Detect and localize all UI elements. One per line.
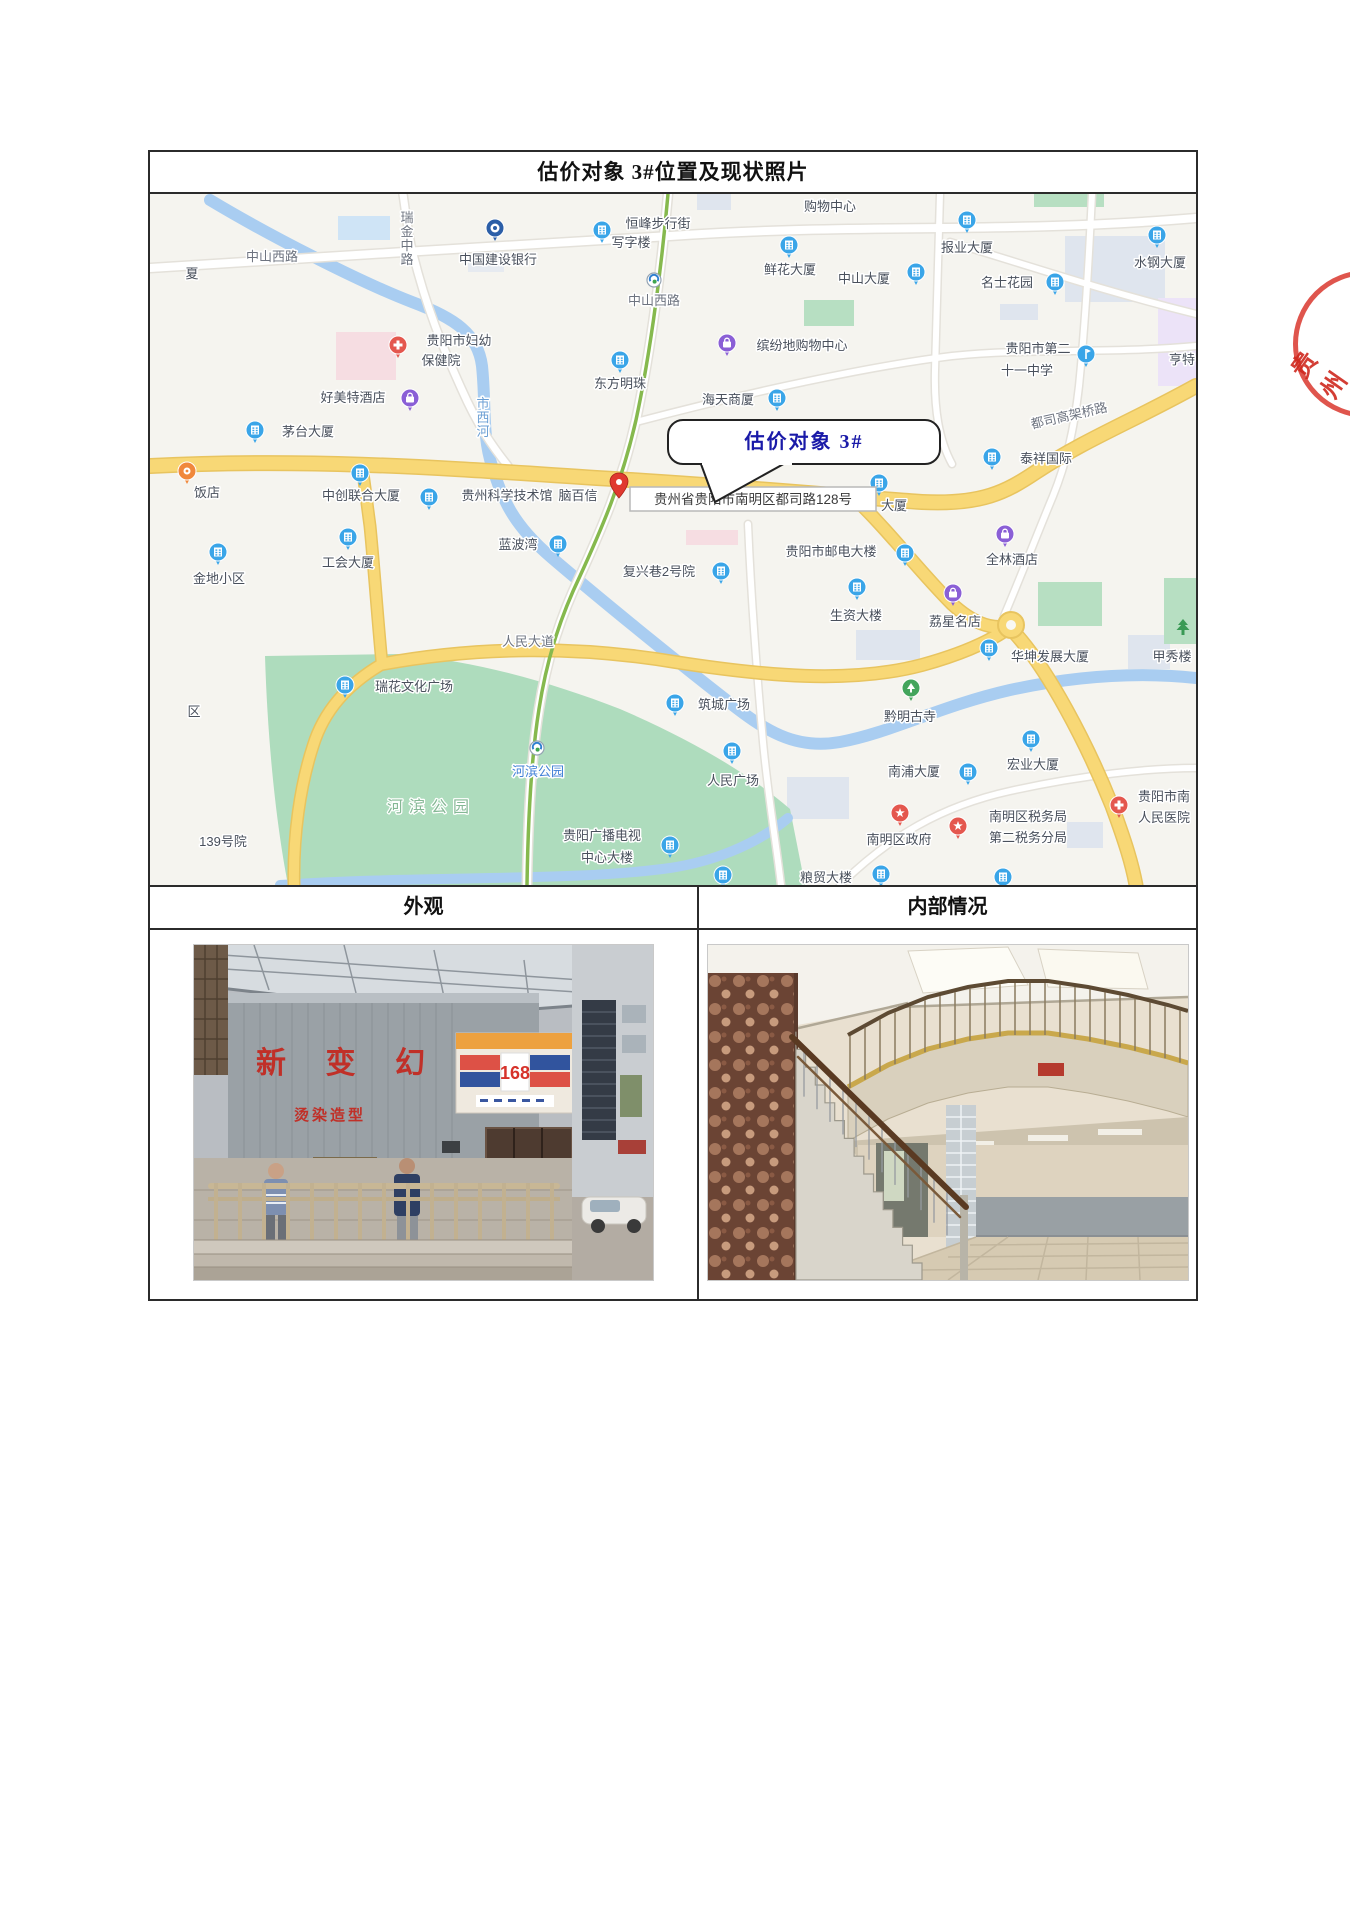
svg-text:筑城广场: 筑城广场 [698,697,750,712]
svg-text:粮贸大楼: 粮贸大楼 [800,870,852,885]
table-title: 估价对象 3#位置及现状照片 [150,152,1196,194]
svg-text:海天商厦: 海天商厦 [702,392,754,407]
wainscot [976,1197,1188,1235]
svg-text:宏业大厦: 宏业大厦 [1007,757,1059,772]
interior-photo-cell [699,930,1196,1299]
svg-text:中山大厦: 中山大厦 [838,271,890,286]
svg-text:中国建设银行: 中国建设银行 [459,252,537,267]
svg-text:中山西路: 中山西路 [628,293,680,308]
svg-text:贵阳市第二: 贵阳市第二 [1005,341,1070,356]
svg-text:十一中学: 十一中学 [1001,363,1053,378]
svg-text:亨特: 亨特 [1169,352,1195,367]
svg-text:黔明古寺: 黔明古寺 [884,709,936,724]
svg-text:南明区税务局: 南明区税务局 [989,809,1067,824]
svg-text:报业大厦: 报业大厦 [941,240,993,255]
official-seal: 贵州 [1288,268,1350,426]
photo-row: 新 变 幻 烫染造型 168 [150,930,1196,1299]
svg-text:139号院: 139号院 [199,834,247,849]
svg-text:缤纷地购物中心: 缤纷地购物中心 [756,338,847,353]
svg-text:生资大楼: 生资大楼 [830,608,882,623]
svg-text:人民大道: 人民大道 [502,634,554,649]
svg-text:名士花园: 名士花园 [981,275,1033,290]
storefront-subsign-text: 烫染造型 [294,1106,366,1124]
svg-text:东方明珠: 东方明珠 [594,376,646,391]
svg-text:复兴巷2号院: 复兴巷2号院 [623,564,695,579]
appraisal-photo-table: 估价对象 3#位置及现状照片 [148,150,1198,1301]
svg-text:恒峰步行街: 恒峰步行街 [625,216,690,231]
svg-text:水钢大厦: 水钢大厦 [1134,255,1186,270]
svg-text:市西河: 市西河 [476,396,489,439]
photo-headers: 外观 内部情况 [150,887,1196,930]
address-tooltip-text: 贵州省贵阳市南明区都司路128号 [654,491,852,507]
sign-168-number: 168 [500,1063,530,1083]
patterned-wallpaper [708,973,796,1280]
svg-text:人民医院: 人民医院 [1138,810,1190,825]
map-canvas: 中国建设银行恒峰步行街写字楼购物中心鲜花大厦报业大厦水钢大厦中山大厦名士花园缤纷… [150,194,1196,885]
svg-text:贵阳市邮电大楼: 贵阳市邮电大楼 [785,544,876,559]
svg-text:金地小区: 金地小区 [193,571,245,586]
svg-text:甲秀楼: 甲秀楼 [1152,649,1191,664]
svg-text:河滨公园: 河滨公园 [512,764,564,779]
report-page: { "table": { "title": "估价对象 3#位置及现状照片", … [0,0,1350,1909]
location-map: 中国建设银行恒峰步行街写字楼购物中心鲜花大厦报业大厦水钢大厦中山大厦名士花园缤纷… [150,194,1196,887]
svg-text:人民广场: 人民广场 [707,773,759,788]
svg-text:全林酒店: 全林酒店 [986,552,1038,567]
svg-text:脑百信: 脑百信 [558,488,597,503]
svg-text:南浦大厦: 南浦大厦 [888,764,940,779]
svg-text:保健院: 保健院 [421,353,460,368]
svg-text:泰祥国际: 泰祥国际 [1020,451,1072,466]
svg-text:大厦: 大厦 [881,498,907,513]
metro-station-icon [530,741,544,755]
svg-text:贵阳市妇幼: 贵阳市妇幼 [426,333,491,348]
red-awning [618,1140,646,1154]
svg-text:鲜花大厦: 鲜花大厦 [764,262,816,277]
svg-text:购物中心: 购物中心 [804,199,856,214]
svg-text:贵阳市南: 贵阳市南 [1138,789,1190,804]
exterior-header: 外观 [150,887,699,928]
svg-text:瑞花文化广场: 瑞花文化广场 [375,679,453,694]
svg-text:华坤发展大厦: 华坤发展大厦 [1011,649,1089,664]
svg-text:贵阳广播电视: 贵阳广播电视 [563,828,641,843]
metro-station-icon [647,273,661,287]
svg-text:瑞金中路: 瑞金中路 [400,210,413,267]
svg-text:区: 区 [187,704,200,719]
interior-header: 内部情况 [699,887,1196,928]
svg-text:中创联合大厦: 中创联合大厦 [322,488,400,503]
svg-text:夏: 夏 [185,266,198,281]
svg-text:茅台大厦: 茅台大厦 [282,424,334,439]
svg-text:饭店: 饭店 [194,485,220,500]
interior-photo [708,945,1188,1280]
svg-text:河滨公园: 河滨公园 [387,798,475,816]
spotlight [442,1141,460,1153]
callout-text: 估价对象 3# [744,429,864,453]
svg-text:贵州科学技术馆: 贵州科学技术馆 [461,488,552,503]
svg-text:第二税务分局: 第二税务分局 [989,830,1067,845]
entrance-steps [194,1240,572,1280]
address-tooltip: 贵州省贵阳市南明区都司路128号 [630,487,876,511]
exterior-photo-cell: 新 变 幻 烫染造型 168 [150,930,699,1299]
svg-text:工会大厦: 工会大厦 [322,555,374,570]
storefront-sign-text: 新 变 幻 [256,1046,441,1080]
svg-text:写字楼: 写字楼 [611,235,650,250]
building-poi-icon [994,868,1012,885]
exterior-photo: 新 变 幻 烫染造型 168 [194,945,653,1280]
svg-text:中山西路: 中山西路 [246,249,298,264]
sign-168: 168 [456,1033,574,1113]
svg-text:好美特酒店: 好美特酒店 [320,390,385,405]
svg-text:荔星名店: 荔星名店 [929,614,981,629]
small-red-sign [1038,1063,1064,1076]
svg-text:中心大楼: 中心大楼 [581,850,633,865]
svg-text:南明区政府: 南明区政府 [866,832,931,847]
svg-text:蓝波湾: 蓝波湾 [498,537,537,552]
